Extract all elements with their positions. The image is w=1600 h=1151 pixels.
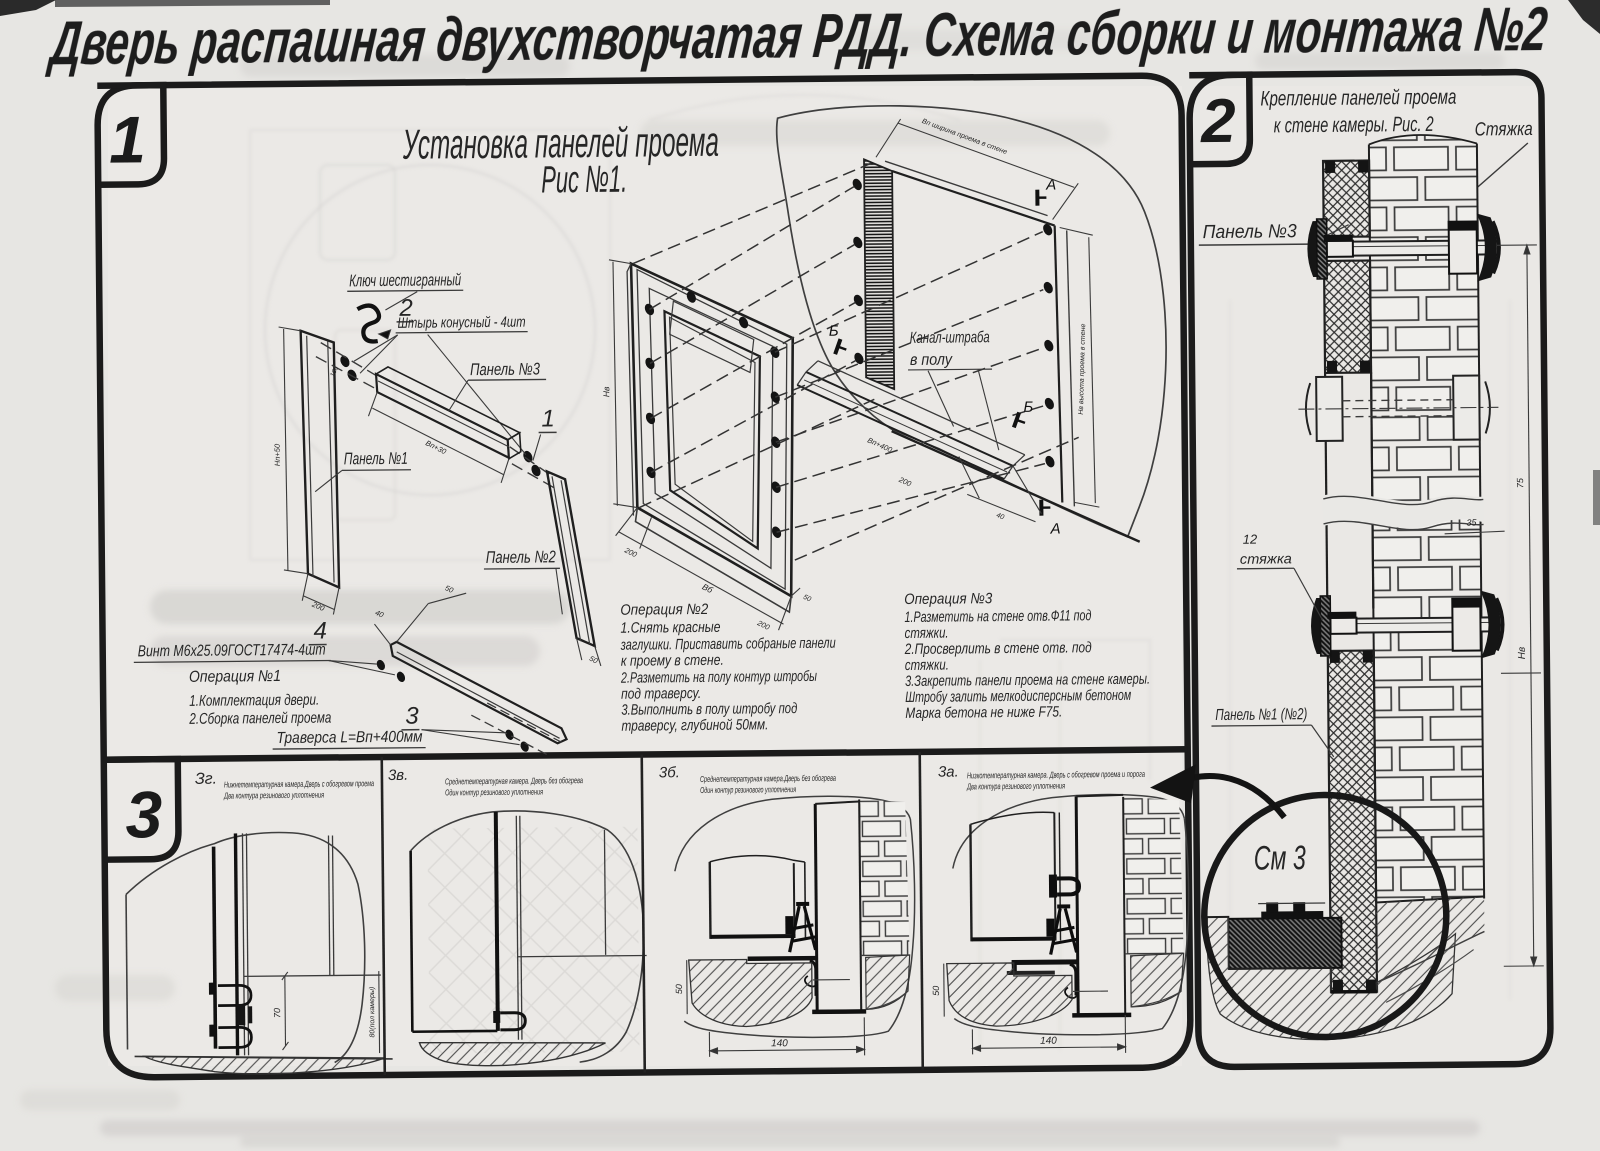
svg-text:Рис №1.: Рис №1. bbox=[541, 159, 627, 202]
svg-text:А: А bbox=[1045, 177, 1056, 194]
svg-text:Панель №2: Панель №2 bbox=[486, 547, 557, 567]
svg-text:под траверсу.: под траверсу. bbox=[621, 685, 701, 703]
svg-text:траверсу, глубиной 50мм.: траверсу, глубиной 50мм. bbox=[621, 716, 768, 734]
svg-text:См 3: См 3 bbox=[1254, 839, 1306, 877]
svg-text:1: 1 bbox=[109, 102, 146, 176]
svg-text:Зг.: Зг. bbox=[195, 771, 217, 788]
svg-text:Нижнетемпературная камера.Двер: Нижнетемпературная камера.Дверь с обогре… bbox=[224, 778, 374, 789]
svg-text:стяжки.: стяжки. bbox=[904, 625, 948, 642]
svg-text:Один контур резинового уплотне: Один контур резинового уплотнения bbox=[445, 786, 543, 797]
svg-text:1: 1 bbox=[541, 405, 555, 432]
svg-text:3: 3 bbox=[405, 703, 419, 730]
svg-text:Среднетемпературная камера.Две: Среднетемпературная камера.Дверь без обо… bbox=[700, 773, 836, 784]
svg-text:70: 70 bbox=[272, 1008, 282, 1018]
svg-text:2.Сборка панелей проема: 2.Сборка панелей проема bbox=[189, 710, 332, 728]
svg-text:в полу: в полу bbox=[910, 352, 953, 369]
svg-text:Нп+50: Нп+50 bbox=[273, 443, 282, 466]
svg-text:50: 50 bbox=[674, 984, 684, 994]
svg-text:Панель №3: Панель №3 bbox=[470, 359, 541, 379]
svg-text:Операция №3: Операция №3 bbox=[904, 590, 993, 608]
svg-text:1.Комплектация двери.: 1.Комплектация двери. bbox=[189, 692, 319, 710]
svg-text:Штырь конусный - 4шт: Штырь конусный - 4шт bbox=[397, 314, 525, 332]
svg-text:А: А bbox=[1049, 520, 1060, 537]
svg-text:Два контура резинового уплотне: Два контура резинового уплотнения bbox=[966, 780, 1065, 791]
svg-text:3б.: 3б. bbox=[659, 764, 680, 781]
svg-text:2.Просверлить в стене отв.: 2.Просверлить в стене отв. под bbox=[904, 639, 1092, 658]
svg-text:80(пол камеры): 80(пол камеры) bbox=[369, 987, 376, 1038]
svg-text:Панель №1: Панель №1 bbox=[344, 449, 408, 469]
svg-text:Низкотемпературная камера. Две: Низкотемпературная камера. Дверь с обогр… bbox=[967, 769, 1145, 781]
svg-text:35: 35 bbox=[1466, 517, 1477, 527]
svg-text:стяжка: стяжка bbox=[1240, 550, 1292, 567]
svg-text:Стяжка: Стяжка bbox=[1475, 119, 1533, 141]
svg-text:Крепление панелей проема: Крепление панелей проема bbox=[1260, 86, 1456, 111]
svg-text:75: 75 bbox=[1515, 477, 1525, 488]
svg-text:Один контур резинового уплотне: Один контур резинового уплотнения bbox=[700, 784, 796, 795]
svg-text:50: 50 bbox=[931, 986, 941, 996]
svg-text:заглушки. Приставить собраные: заглушки. Приставить собраные панели bbox=[620, 635, 836, 654]
svg-text:Операция №1: Операция №1 bbox=[189, 668, 281, 686]
svg-text:Марка бетона не ниже F75.: Марка бетона не ниже F75. bbox=[905, 703, 1062, 722]
svg-text:Б: Б bbox=[1023, 399, 1033, 416]
svg-text:Ключ шестигранный: Ключ шестигранный bbox=[349, 270, 462, 290]
svg-text:к проему в стене.: к проему в стене. bbox=[621, 652, 724, 670]
svg-text:1.Снять красные: 1.Снять красные bbox=[620, 619, 720, 637]
svg-text:Операция №2: Операция №2 bbox=[620, 601, 709, 619]
svg-text:Нв: Нв bbox=[601, 386, 611, 397]
svg-text:140: 140 bbox=[1040, 1036, 1057, 1047]
svg-text:Канал-штраба: Канал-штраба bbox=[910, 329, 990, 347]
svg-text:3в.: 3в. bbox=[388, 767, 409, 784]
svg-text:2.Разметить на полу контур штр: 2.Разметить на полу контур штробы bbox=[620, 668, 817, 687]
svg-text:Панель №1 (№2): Панель №1 (№2) bbox=[1215, 706, 1307, 724]
svg-text:140: 140 bbox=[771, 1038, 788, 1049]
svg-text:Б: Б bbox=[829, 323, 839, 340]
svg-text:к стене камеры. Рис. 2: к стене камеры. Рис. 2 bbox=[1274, 113, 1434, 138]
svg-text:12: 12 bbox=[1243, 532, 1258, 547]
svg-text:3а.: 3а. bbox=[938, 763, 959, 780]
svg-text:2: 2 bbox=[1200, 87, 1236, 156]
svg-text:Панель №3: Панель №3 bbox=[1203, 221, 1298, 243]
svg-text:Винт М6х25.09ГОСТ17474-4шт: Винт М6х25.09ГОСТ17474-4шт bbox=[138, 642, 326, 661]
svg-text:Нв: Нв bbox=[1517, 647, 1528, 660]
svg-text:Траверса L=Вп+400мм: Траверса L=Вп+400мм bbox=[276, 729, 422, 747]
svg-text:3: 3 bbox=[125, 777, 162, 851]
svg-text:Два контура резинового уплотне: Два контура резинового уплотнения bbox=[223, 790, 324, 801]
svg-text:Среднетемпературная камера. Дв: Среднетемпературная камера. Дверь без об… bbox=[445, 775, 583, 786]
svg-text:1.Разметить на стене отв.Ф11 п: 1.Разметить на стене отв.Ф11 под bbox=[904, 607, 1091, 626]
svg-text:стяжки.: стяжки. bbox=[905, 657, 949, 674]
